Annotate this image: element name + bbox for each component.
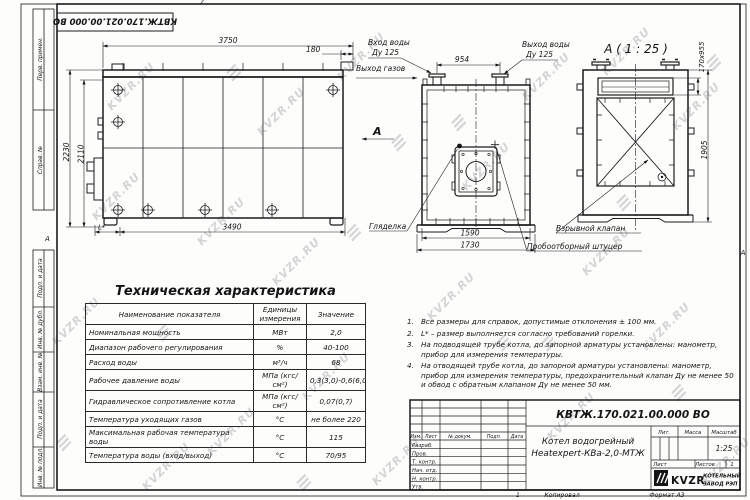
sight-glass-label: Гляделка <box>369 222 407 231</box>
spec-unit: МВт <box>254 325 307 340</box>
spec-table-block: Техническая характеристика Наименование … <box>85 284 366 463</box>
spec-name: Рабочее давление воды <box>86 370 254 391</box>
dim-954: 954 <box>455 55 470 64</box>
boiler-side-view <box>66 42 353 236</box>
row-nachotd: Нач. отд. <box>412 468 437 474</box>
top-doc-number: КВТЖ.170.021.00.000 ВО <box>53 16 177 26</box>
strip-label: Взам. инв. № <box>38 352 44 391</box>
view-direction-mark: А <box>372 125 382 138</box>
note-text: На отводящей трубе котла, до запорной ар… <box>421 361 738 390</box>
spec-name: Гидравлическое сопротивление котла <box>86 391 254 412</box>
spec-name: Максимальная рабочая температура воды <box>86 427 254 448</box>
spec-value: 70/95 <box>306 448 365 463</box>
spec-value: 40-100 <box>306 340 365 355</box>
sheets-label: Листов <box>694 462 715 468</box>
strip-label: Перв. примен. <box>38 37 44 81</box>
lit-label: Лит. <box>657 430 670 436</box>
row-nkontr: Н. контр. <box>412 476 437 482</box>
spec-unit: м³/ч <box>254 355 307 370</box>
spec-header-name: Наименование показателя <box>86 304 254 325</box>
spec-value: 0,07(0,7) <box>306 391 365 412</box>
water-inlet-label: Вход воды <box>368 38 410 47</box>
spec-value: 115 <box>306 427 365 448</box>
dim-2110: 2110 <box>77 144 86 163</box>
side-view-dimensions <box>66 42 353 236</box>
kvzr-logo-icon <box>654 470 668 486</box>
dim-1730: 1730 <box>460 241 479 250</box>
dim-3750: 3750 <box>218 36 237 45</box>
water-outlet-label: Выход воды <box>522 40 570 49</box>
title-block-texts: КВТЖ.170.021.00.000 ВО Котел водогрейный… <box>410 409 741 499</box>
scale-value: 1:25 <box>716 444 733 453</box>
row-razrab: Разраб. <box>412 443 433 449</box>
dim-L: L* <box>98 224 106 232</box>
spec-row: Диапазон рабочего регулирования%40-100 <box>86 340 366 355</box>
spec-name: Температура воды (вход/выход) <box>86 448 254 463</box>
dim-170x955: 170х955 <box>698 41 706 72</box>
spec-header-unit: Единицы измерения <box>254 304 307 325</box>
row-utv: Утв. <box>412 485 423 491</box>
strip-label: Подп. и дата <box>38 258 44 298</box>
strip-label: Инв. № подл. <box>38 447 44 487</box>
spec-row: Гидравлическое сопротивление котлаМПа (к… <box>86 391 366 412</box>
sampling-fitting-mark <box>491 141 499 150</box>
spec-row: Расход водым³/ч68 <box>86 355 366 370</box>
spec-value: 68 <box>306 355 365 370</box>
spec-unit: °С <box>254 427 307 448</box>
zone-marker-top: 2 <box>200 0 204 6</box>
note-text: На подводящей трубе котла, до запорной а… <box>421 340 738 359</box>
dim-180: 180 <box>306 45 321 54</box>
col-docnum: № докум. <box>447 434 472 440</box>
scale-label: Масштаб <box>711 430 737 436</box>
fitting-circles <box>111 83 340 217</box>
sampling-fitting-label: Пробоотборный штуцер <box>527 242 623 251</box>
product-name-line1: Котел водогрейный <box>542 437 635 447</box>
strip-label: Инв. № дубл. <box>38 309 44 349</box>
spec-table-title: Техническая характеристика <box>85 284 366 299</box>
copied-label: Копировал <box>544 492 579 499</box>
zone-marker-right: А <box>740 249 746 257</box>
spec-unit: % <box>254 340 307 355</box>
strip-label: Подп. и дата <box>38 399 44 439</box>
dim-1905: 1905 <box>700 140 709 159</box>
section-view-title: А ( 1 : 25 ) <box>603 42 668 56</box>
spec-row: Рабочее давление водыМПа (кгс/см²)0,3(3,… <box>86 370 366 391</box>
burner-mount-stubs <box>87 118 103 200</box>
boiler-section-view <box>556 60 712 234</box>
note-item: 4. На отводящей трубе котла, до запорной… <box>407 361 738 390</box>
company-line1: КОТЕЛЬНЫЙ <box>703 472 742 480</box>
spec-header-row: Наименование показателя Единицы измерени… <box>86 304 366 325</box>
note-number: 4. <box>407 361 421 390</box>
sheet-label: Лист <box>652 462 667 468</box>
spec-row: Максимальная рабочая температура воды°С1… <box>86 427 366 448</box>
explosion-valve-label: Взрывной клапан <box>556 224 625 233</box>
note-number: 2. <box>407 329 421 339</box>
col-podp: Подп. <box>487 434 502 440</box>
note-item: 3. На подводящей трубе котла, до запорно… <box>407 340 738 359</box>
drawing-sheet: KVZR.RU KVZR.RU KVZR.RU KVZR.RU KVZR.RU … <box>0 0 750 500</box>
product-name-line2: Heatexpert-КВа-2,0-МТЖ <box>531 449 645 459</box>
notes-block: 1. Все размеры для справок, допустимые о… <box>407 317 738 392</box>
dim-3490: 3490 <box>222 223 241 232</box>
dim-2230: 2230 <box>62 142 71 161</box>
spec-value: не более 220 <box>306 412 365 427</box>
water-inlet-dn: Ду 125 <box>371 48 399 57</box>
spec-value: 0,3(3,0)-0,6(6,0) <box>306 370 365 391</box>
spec-unit: °С <box>254 412 307 427</box>
note-text: L* – размер выполняется согласно требова… <box>421 329 738 339</box>
row-tkontr: Т. контр. <box>412 460 437 466</box>
note-text: Все размеры для справок, допустимые откл… <box>421 317 738 327</box>
spec-row: Номинальная мощностьМВт2,0 <box>86 325 366 340</box>
spec-value: 2,0 <box>306 325 365 340</box>
col-list: Лист <box>424 434 437 440</box>
doc-number: КВТЖ.170.021.00.000 ВО <box>556 409 710 421</box>
spec-header-value: Значение <box>306 304 365 325</box>
spec-unit: °С <box>254 448 307 463</box>
spec-name: Номинальная мощность <box>86 325 254 340</box>
sheets-value: 1 <box>730 462 734 468</box>
spec-name: Диапазон рабочего регулирования <box>86 340 254 355</box>
note-item: 1. Все размеры для справок, допустимые о… <box>407 317 738 327</box>
spec-row: Температура воды (вход/выход)°С70/95 <box>86 448 366 463</box>
kvzr-logo-text: KVZR <box>671 475 705 487</box>
row-prov: Пров. <box>412 451 427 457</box>
company-line2: ЗАВОД РЭП <box>703 482 738 488</box>
gas-outlet-label: Выход газов <box>356 64 405 73</box>
spec-name: Расход воды <box>86 355 254 370</box>
spec-unit: МПа (кгс/см²) <box>254 391 307 412</box>
format-label: Формат А3 <box>649 492 684 499</box>
sight-glass-mark <box>457 144 462 149</box>
note-number: 1. <box>407 317 421 327</box>
spec-table: Наименование показателя Единицы измерени… <box>85 303 366 463</box>
zone-marker-bottom: 1 <box>516 492 520 499</box>
note-item: 2. L* – размер выполняется согласно треб… <box>407 329 738 339</box>
mass-label: Масса <box>685 430 702 436</box>
col-izm: Изм. <box>410 434 421 440</box>
zone-marker-left: А <box>44 235 50 243</box>
side-view-dim-texts: 3750 180 2230 2110 3490 L* <box>62 36 321 232</box>
spec-unit: МПа (кгс/см²) <box>254 370 307 391</box>
water-outlet-dn: Ду 125 <box>525 50 553 59</box>
spec-name: Температура уходящих газов <box>86 412 254 427</box>
col-data: Дата <box>510 434 523 440</box>
spec-row: Температура уходящих газов°Сне более 220 <box>86 412 366 427</box>
dim-1590: 1590 <box>460 229 479 238</box>
strip-label: Справ. № <box>38 146 44 174</box>
note-number: 3. <box>407 340 421 359</box>
